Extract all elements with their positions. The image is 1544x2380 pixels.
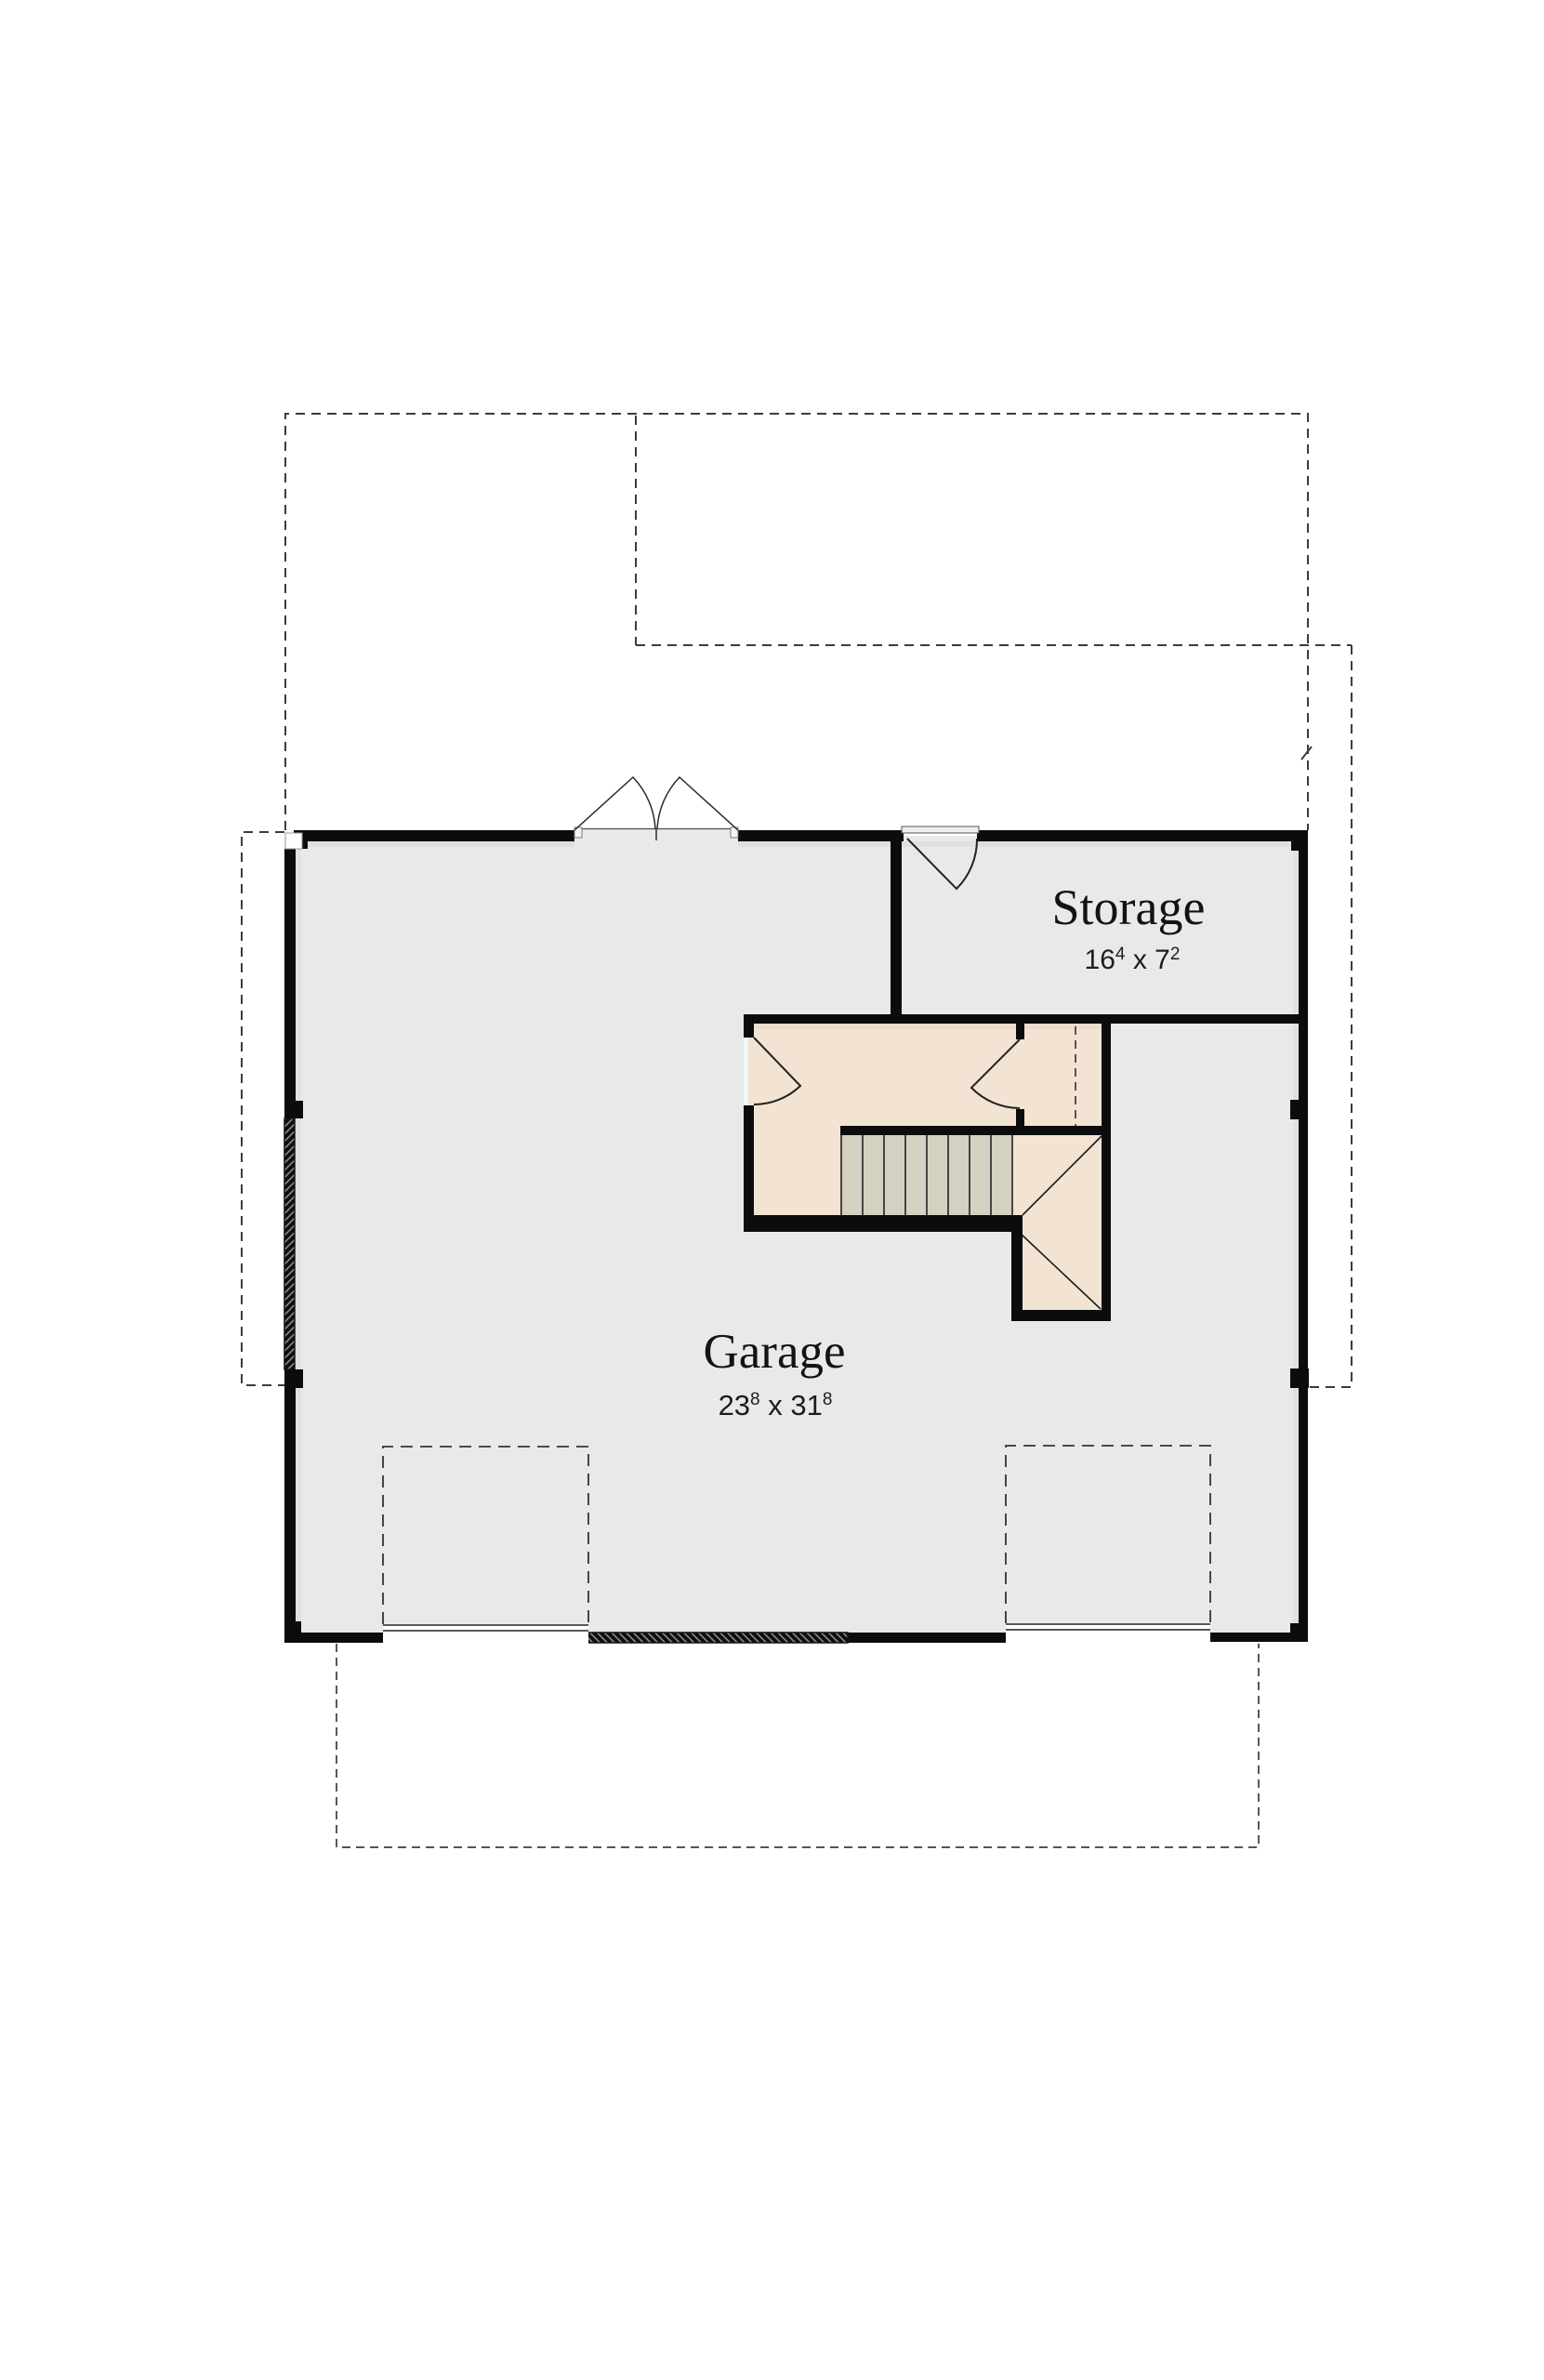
svg-text:164 x 72: 164 x 72	[1085, 945, 1181, 975]
svg-text:238 x 318: 238 x 318	[719, 1389, 833, 1421]
svg-text:Garage: Garage	[704, 1325, 846, 1379]
svg-text:Storage: Storage	[1052, 879, 1206, 935]
